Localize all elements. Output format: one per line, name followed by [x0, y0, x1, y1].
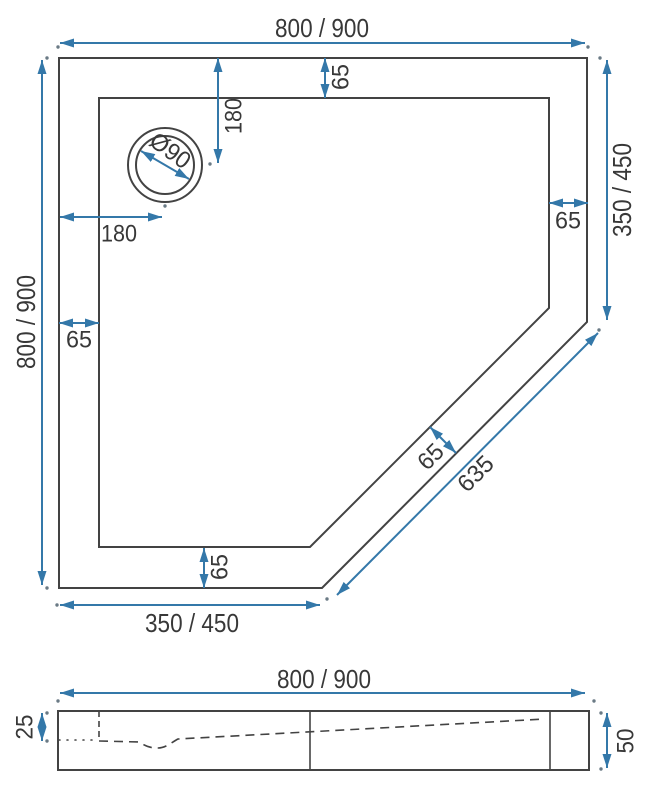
dim-label-rim-bottom: 65: [207, 554, 234, 580]
dim-drain-from-left: 180: [60, 217, 162, 248]
tray-outer-outline: [59, 58, 587, 588]
shower-tray-technical-drawing: 800 / 900 800 / 900 350 / 450 350 / 450 …: [0, 0, 649, 800]
dim-label-right-edge: 350 / 450: [607, 143, 637, 237]
dim-label-rim-left: 65: [66, 327, 92, 354]
dim-side-width: 800 / 900: [60, 664, 585, 694]
dim-label-bottom-edge: 350 / 450: [145, 608, 239, 638]
dim-label-drain-from-top: 180: [221, 98, 248, 134]
dim-right-edge: 350 / 450: [607, 60, 637, 320]
dim-rim-right: 65: [549, 203, 588, 235]
dim-label-outer-height: 800 / 900: [11, 275, 41, 369]
dim-outer-width: 800 / 900: [60, 13, 585, 43]
dim-rim-diagonal: 65: [412, 427, 456, 476]
dim-bottom-edge: 350 / 450: [60, 605, 320, 638]
side-view: 800 / 900 25 50: [12, 664, 640, 770]
dim-drain-from-top: 180: [218, 58, 248, 163]
tray-slope-hidden-line: [99, 719, 545, 748]
dim-outer-height: 800 / 900: [11, 60, 42, 585]
dim-label-outer-width: 800 / 900: [275, 13, 369, 43]
side-profile-outline: [58, 711, 589, 770]
dim-label-side-width: 800 / 900: [277, 664, 371, 694]
dim-rim-top: 65: [325, 58, 355, 98]
dim-rim-bottom: 65: [204, 548, 234, 588]
dim-label-total-height: 50: [613, 729, 640, 754]
dim-label-edge-height: 25: [12, 715, 39, 740]
dim-diagonal-edge: 635: [337, 333, 598, 595]
dim-label-drain-from-left: 180: [101, 221, 137, 248]
dim-label-rim-right: 65: [555, 208, 581, 235]
drawing-canvas: 800 / 900 800 / 900 350 / 450 350 / 450 …: [0, 0, 649, 800]
dim-label-rim-diagonal: 65: [412, 438, 449, 475]
dim-rim-left: 65: [59, 323, 99, 354]
dim-total-height: 50: [607, 713, 640, 768]
top-view: 800 / 900 800 / 900 350 / 450 350 / 450 …: [11, 13, 637, 638]
dim-label-rim-top: 65: [328, 64, 355, 90]
dim-edge-height: 25: [12, 713, 43, 741]
dim-label-diagonal-edge: 635: [452, 450, 499, 497]
